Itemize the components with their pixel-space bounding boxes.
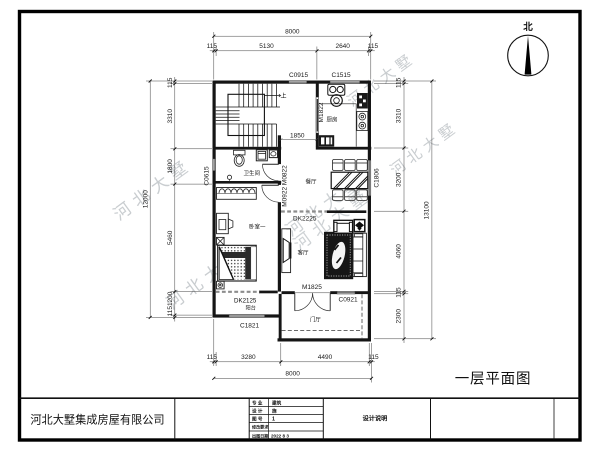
svg-text:施: 施 xyxy=(271,407,277,414)
svg-text:115: 115 xyxy=(207,354,218,361)
svg-text:北: 北 xyxy=(523,21,533,33)
svg-text:DK2125: DK2125 xyxy=(234,297,257,304)
svg-text:1800: 1800 xyxy=(167,159,174,174)
svg-text:河北大墅集成房屋有限公司: 河北大墅集成房屋有限公司 xyxy=(30,413,164,427)
svg-text:一层平面图: 一层平面图 xyxy=(455,372,532,388)
svg-text:C1806: C1806 xyxy=(374,168,381,188)
svg-text:115: 115 xyxy=(396,77,403,88)
svg-text:建筑: 建筑 xyxy=(271,399,282,406)
svg-text:12000: 12000 xyxy=(142,190,149,208)
svg-text:115: 115 xyxy=(368,354,379,361)
svg-text:13100: 13100 xyxy=(424,201,431,219)
svg-text:8000: 8000 xyxy=(285,29,300,36)
svg-text:4490: 4490 xyxy=(318,354,333,361)
svg-text:8000: 8000 xyxy=(285,371,300,378)
svg-text:C0615: C0615 xyxy=(204,166,211,186)
svg-text:115: 115 xyxy=(207,43,218,50)
svg-text:客厅: 客厅 xyxy=(298,249,310,257)
svg-text:3310: 3310 xyxy=(167,109,174,124)
svg-text:M0922 M0822: M0922 M0822 xyxy=(282,165,289,207)
svg-text:设计说明: 设计说明 xyxy=(363,415,388,423)
svg-text:115: 115 xyxy=(396,287,403,298)
svg-text:2640: 2640 xyxy=(335,43,350,50)
svg-text:DK2225: DK2225 xyxy=(293,216,317,223)
svg-text:卫生间: 卫生间 xyxy=(244,169,261,177)
svg-text:5130: 5130 xyxy=(259,43,274,50)
svg-text:修改要求: 修改要求 xyxy=(251,424,269,430)
svg-text:厨房: 厨房 xyxy=(327,116,339,124)
svg-text:3280: 3280 xyxy=(241,354,256,361)
svg-text:阳台: 阳台 xyxy=(246,304,256,312)
svg-text:设 计: 设 计 xyxy=(252,407,263,414)
svg-text:图 号: 图 号 xyxy=(252,415,263,422)
svg-text:2300: 2300 xyxy=(396,309,403,324)
svg-text:115: 115 xyxy=(368,43,379,50)
svg-text:M1825: M1825 xyxy=(302,284,322,291)
svg-text:M1822: M1822 xyxy=(318,102,325,122)
svg-text:餐厅: 餐厅 xyxy=(306,178,318,186)
svg-text:C1821: C1821 xyxy=(240,323,260,330)
svg-text:115: 115 xyxy=(167,77,174,88)
svg-text:3310: 3310 xyxy=(396,108,403,123)
svg-text:出图日期: 出图日期 xyxy=(252,432,268,438)
svg-text:2022 8 3: 2022 8 3 xyxy=(271,433,289,438)
svg-text:专 业: 专 业 xyxy=(252,399,263,406)
svg-text:C0915: C0915 xyxy=(289,72,309,79)
svg-text:1: 1 xyxy=(272,417,275,423)
svg-text:C0921: C0921 xyxy=(339,297,359,304)
svg-text:1151200: 1151200 xyxy=(167,291,174,316)
svg-text:上: 上 xyxy=(281,92,287,100)
svg-text:门厅: 门厅 xyxy=(310,316,321,324)
svg-text:卧室一: 卧室一 xyxy=(249,223,266,231)
svg-text:C1515: C1515 xyxy=(332,72,352,79)
svg-text:5460: 5460 xyxy=(167,230,174,245)
svg-text:4060: 4060 xyxy=(396,244,403,259)
svg-text:1850: 1850 xyxy=(290,133,305,140)
svg-text:3200: 3200 xyxy=(396,172,403,187)
